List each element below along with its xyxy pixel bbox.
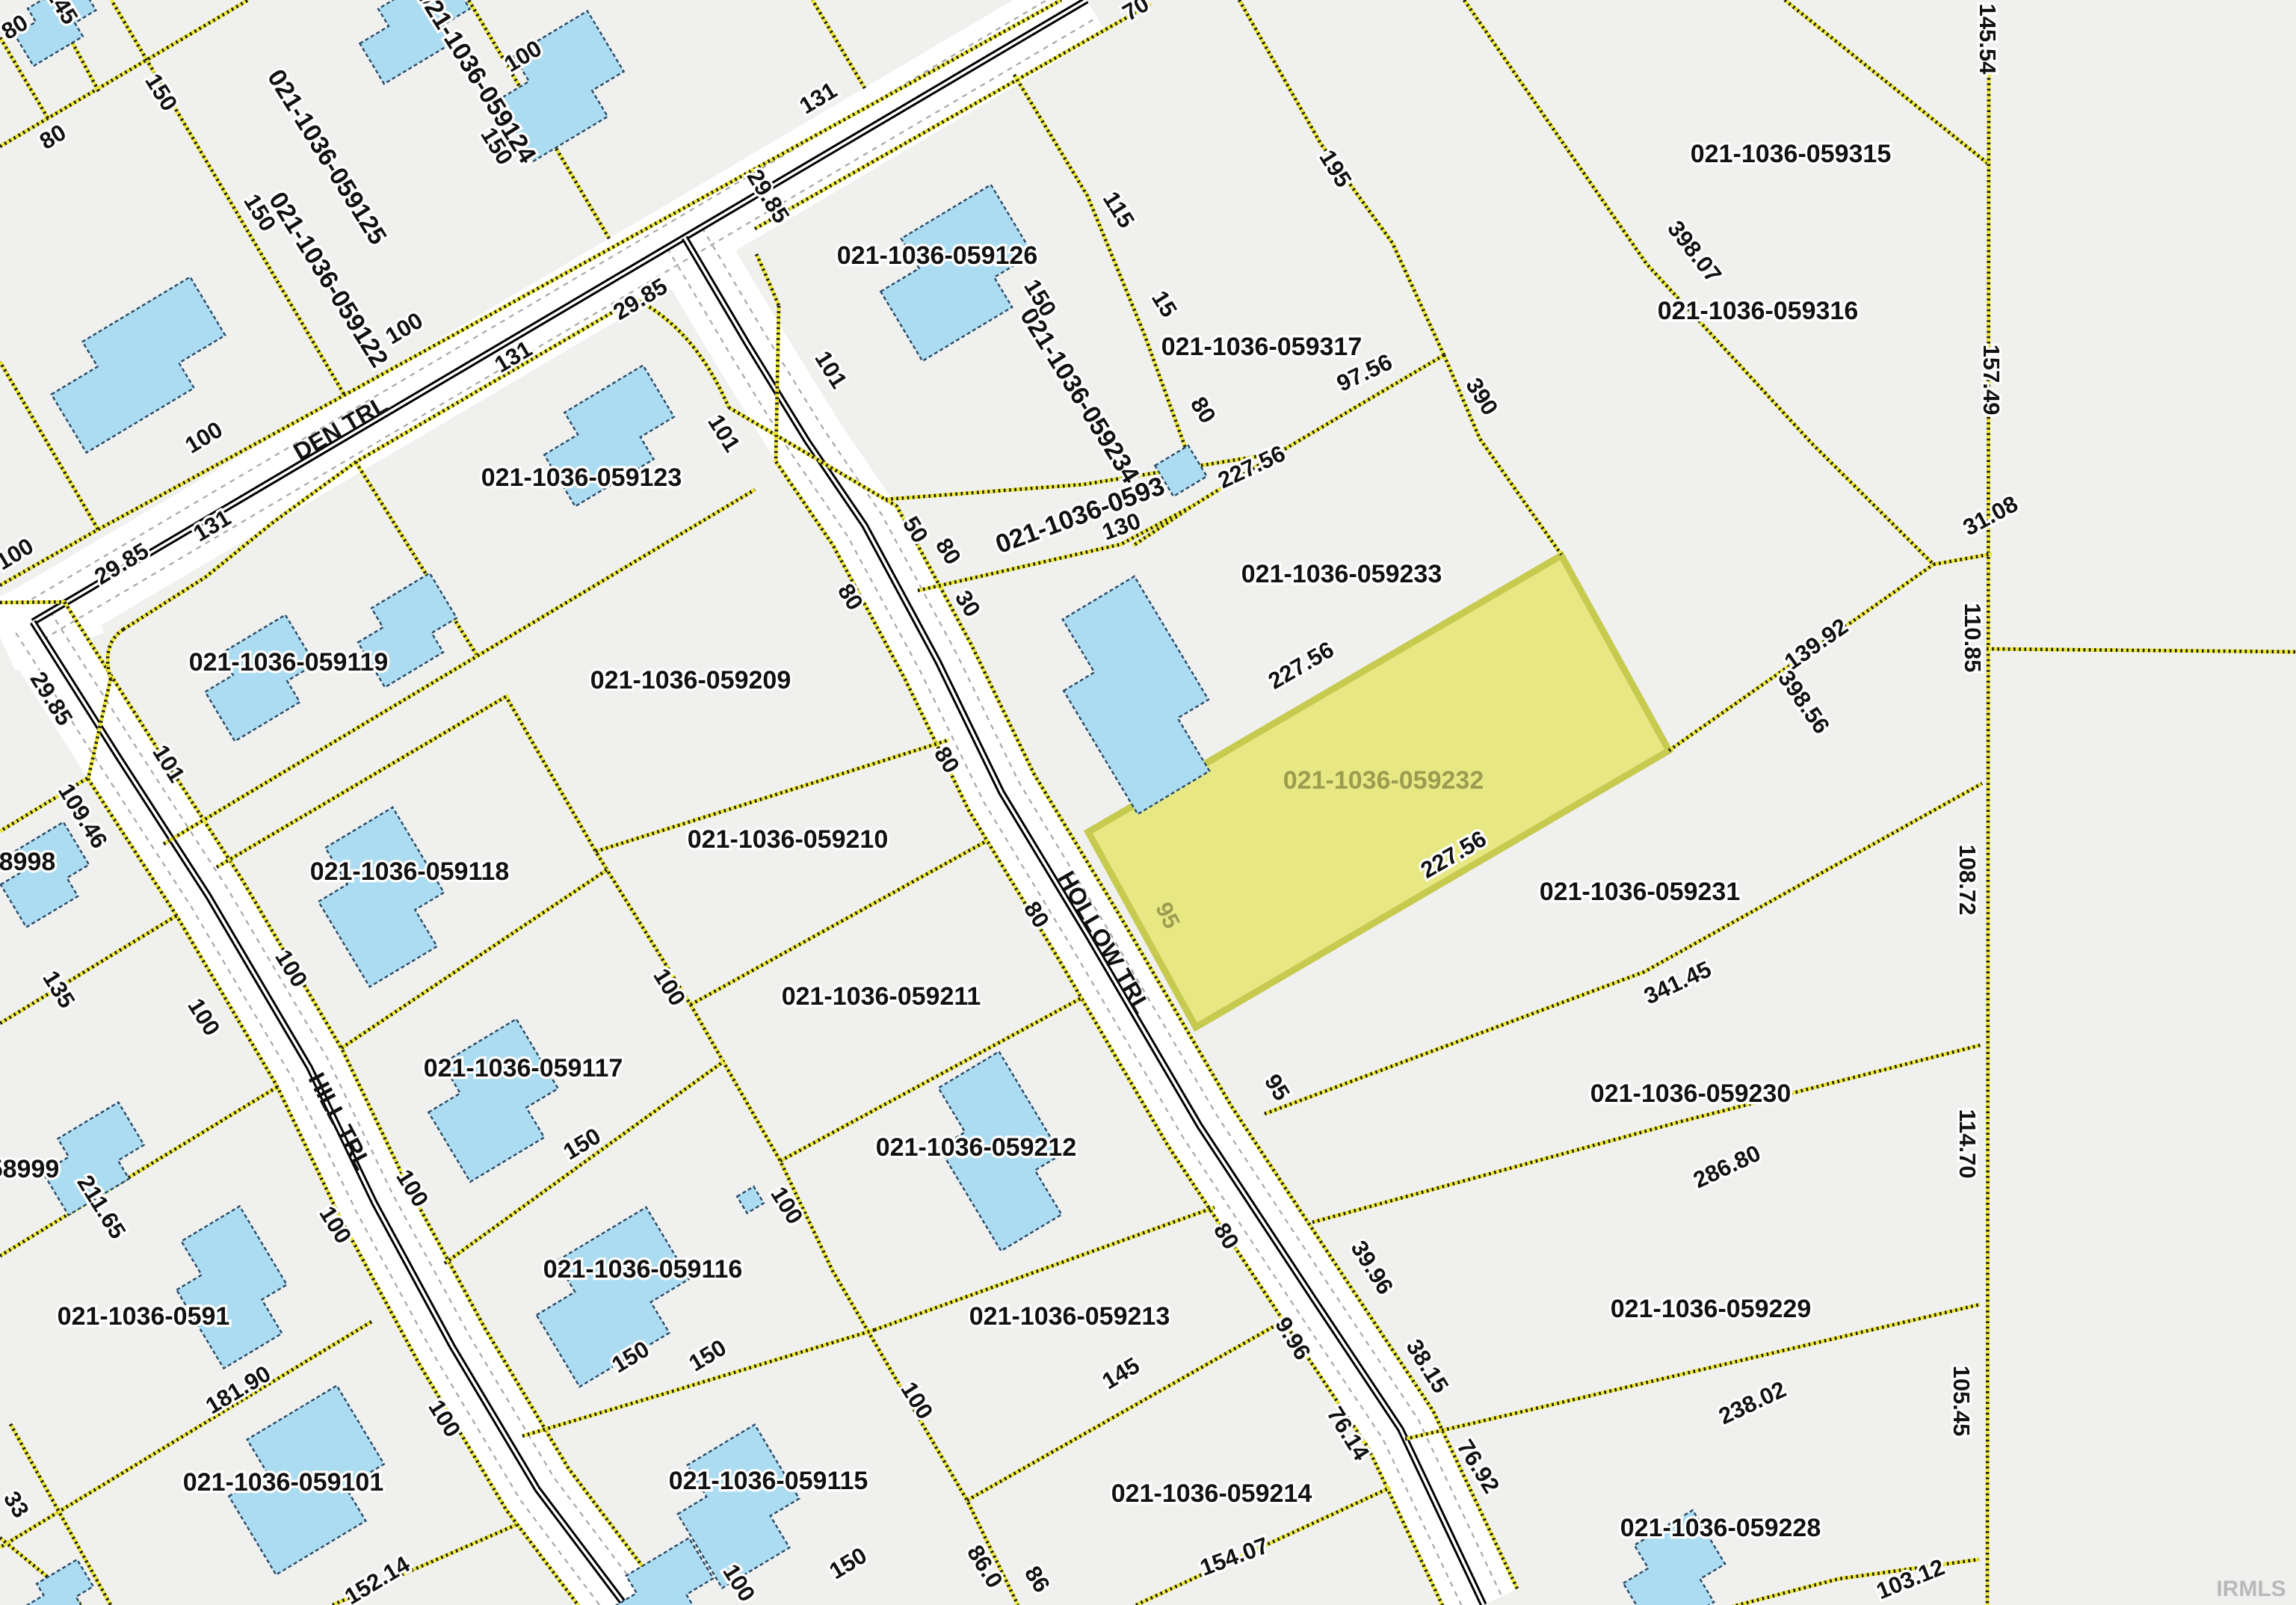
svg-text:021-1036-059211: 021-1036-059211 [782,982,981,1011]
svg-text:021-1036-059233: 021-1036-059233 [1241,560,1442,588]
svg-text:021-1036-059209: 021-1036-059209 [590,666,791,694]
svg-text:021-1036-059317: 021-1036-059317 [1161,333,1362,361]
svg-text:IRMLS: IRMLS [2216,1577,2286,1601]
svg-text:021-1036-0591: 021-1036-0591 [58,1302,230,1331]
svg-text:114.70: 114.70 [1954,1109,1981,1178]
svg-text:021-1036-058999: 021-1036-058999 [0,1155,59,1183]
svg-text:021-1036-059214: 021-1036-059214 [1111,1479,1312,1508]
svg-text:021-1036-059119: 021-1036-059119 [189,648,389,677]
svg-text:021-1036-059230: 021-1036-059230 [1590,1079,1791,1108]
svg-text:021-1036-059117: 021-1036-059117 [424,1054,623,1082]
svg-text:021-1036-059123: 021-1036-059123 [481,463,682,492]
svg-text:021-1036-059116: 021-1036-059116 [543,1255,743,1284]
svg-text:105.45: 105.45 [1948,1366,1975,1437]
svg-text:021-1036-059316: 021-1036-059316 [1658,297,1858,325]
svg-text:021-1036-059126: 021-1036-059126 [837,241,1037,270]
svg-text:110.85: 110.85 [1960,603,1986,672]
svg-text:021-1036-059231: 021-1036-059231 [1540,878,1740,906]
svg-text:021-1036-059115: 021-1036-059115 [669,1467,868,1495]
svg-text:021-1036-059228: 021-1036-059228 [1620,1514,1821,1542]
svg-text:021-1036-058998: 021-1036-058998 [0,848,55,876]
svg-text:021-1036-059210: 021-1036-059210 [688,825,888,854]
svg-text:021-1036-059212: 021-1036-059212 [876,1133,1076,1162]
svg-text:021-1036-059118: 021-1036-059118 [310,857,510,886]
svg-text:021-1036-059315: 021-1036-059315 [1691,140,1891,168]
svg-text:157.49: 157.49 [1978,345,2005,416]
svg-text:108.72: 108.72 [1954,845,1981,916]
svg-text:021-1036-059213: 021-1036-059213 [969,1302,1170,1331]
svg-text:021-1036-059101: 021-1036-059101 [183,1468,383,1497]
svg-text:021-1036-059229: 021-1036-059229 [1611,1295,1811,1323]
svg-text:021-1036-059232: 021-1036-059232 [1283,766,1484,795]
svg-text:145.54: 145.54 [1975,4,2001,76]
